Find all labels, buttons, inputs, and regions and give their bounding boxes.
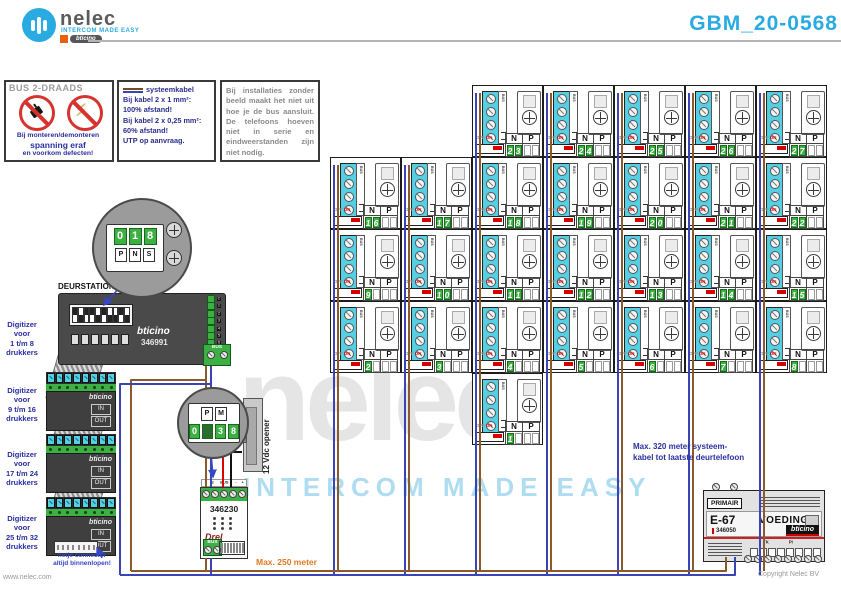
address-digit: 2 xyxy=(578,145,585,156)
address-table: N P 3 xyxy=(434,349,469,373)
terminal-screw xyxy=(344,166,354,176)
address-digit: 2 xyxy=(720,145,727,156)
in-port: IN xyxy=(91,529,111,540)
empty-slot xyxy=(666,361,673,372)
off-label: OFF xyxy=(760,208,769,212)
output-screws xyxy=(744,555,822,563)
dial-label[interactable]: N xyxy=(129,248,141,262)
digitizer-brand: bticino xyxy=(89,456,112,463)
address-digit: 6 xyxy=(373,217,380,228)
off-on-switch[interactable] xyxy=(689,144,717,154)
off-on-switch[interactable] xyxy=(476,288,504,298)
off-label: OFF xyxy=(689,352,698,356)
audio-only-text: Bij installaties zonder beeld maakt het … xyxy=(226,86,314,158)
off-on-switch[interactable] xyxy=(689,360,717,370)
phone-unit xyxy=(730,235,754,279)
n-digits: 22 xyxy=(790,216,806,228)
terminal-screw xyxy=(699,94,709,104)
off-on-switch[interactable] xyxy=(618,360,646,370)
digitizer-terminals xyxy=(46,434,116,446)
on-label: ON xyxy=(557,280,563,284)
off-label: OFF xyxy=(760,280,769,284)
deurtelefoon-cell: BUS OFF ON N P 8 xyxy=(756,301,827,373)
p-header: P xyxy=(451,206,468,215)
speaker-icon xyxy=(380,326,395,341)
address-digit: 1 xyxy=(436,217,443,228)
empty-slot xyxy=(524,217,531,228)
speaker-grille xyxy=(594,167,607,180)
p-slots xyxy=(593,216,610,228)
deurtelefoon-cell: BUS OFF ON N P 24 xyxy=(543,85,614,157)
address-table: N P 20 xyxy=(647,205,682,229)
dip-switch-block[interactable] xyxy=(69,304,133,326)
empty-slot xyxy=(816,361,823,372)
on-label: ON xyxy=(415,280,421,284)
off-label: OFF xyxy=(476,208,485,212)
terminal-screw xyxy=(557,238,567,248)
p-slots xyxy=(806,216,823,228)
out-port: OUT xyxy=(91,416,111,427)
address-digit: 1 xyxy=(649,289,656,300)
off-on-switch[interactable] xyxy=(618,144,646,154)
empty-slot xyxy=(666,289,673,300)
off-on-switch[interactable] xyxy=(334,288,362,298)
terminal-screw xyxy=(415,166,425,176)
off-on-switch[interactable] xyxy=(334,360,362,370)
p-slots xyxy=(522,432,539,444)
terminal-screw xyxy=(486,179,496,189)
terminal-screw xyxy=(486,238,496,248)
phone-unit xyxy=(659,307,683,351)
empty-slot xyxy=(737,145,744,156)
deurtelefoon-cell: BUS OFF ON N P 16 xyxy=(330,157,401,229)
empty-slot xyxy=(799,361,806,372)
address-digit: 4 xyxy=(507,361,514,372)
terminal-screw xyxy=(804,555,812,563)
phone-unit xyxy=(375,235,399,279)
p-slots xyxy=(451,288,468,300)
terminal-row: 3 xyxy=(207,318,223,324)
speaker-grille xyxy=(381,239,394,252)
deurtelefoon-cell: BUS OFF ON N P 27 xyxy=(756,85,827,157)
digitizer-brand: bticino xyxy=(89,519,112,526)
address-digit: 1 xyxy=(515,289,522,300)
empty-slot xyxy=(373,361,380,372)
phone-unit xyxy=(446,307,470,351)
off-label: OFF xyxy=(334,352,343,356)
n-header: N xyxy=(790,134,806,143)
on-label: ON xyxy=(770,352,776,356)
phone-unit xyxy=(801,235,825,279)
p-header: P xyxy=(735,350,752,359)
max-distance-bottom: Max. 250 meter xyxy=(256,557,317,567)
off-on-switch[interactable] xyxy=(618,216,646,226)
address-table: N P 10 xyxy=(434,277,469,301)
off-on-switch[interactable] xyxy=(547,288,575,298)
off-on-switch[interactable] xyxy=(760,216,788,226)
empty-slot xyxy=(595,217,602,228)
deurstation-module: bticino 346991 C12345678 xyxy=(58,293,226,365)
deurstation-brand: bticino xyxy=(137,326,170,337)
address-digit: 2 xyxy=(507,145,514,156)
deurtelefoon-cell: BUS OFF ON N P 14 xyxy=(685,229,756,301)
empty-slot xyxy=(666,217,673,228)
p-slots xyxy=(593,144,610,156)
empty-slot xyxy=(532,361,539,372)
n-header: N xyxy=(790,350,806,359)
phone-unit xyxy=(517,235,541,279)
off-label: OFF xyxy=(547,136,556,140)
speaker-grille xyxy=(807,167,820,180)
off-on-switch[interactable] xyxy=(689,288,717,298)
terminal-screw xyxy=(486,251,496,261)
address-digit: 1 xyxy=(720,289,727,300)
terminal-screw xyxy=(415,264,425,274)
audio-only-info-box: Bij installaties zonder beeld maakt het … xyxy=(220,80,320,162)
n-digits: 23 xyxy=(506,144,522,156)
p-header: P xyxy=(522,206,539,215)
bticino-logo-square xyxy=(60,35,68,43)
empty-slot xyxy=(737,361,744,372)
deurtelefoon-cell: BUS OFF ON N P 23 xyxy=(472,85,543,157)
terminal-screw xyxy=(557,310,567,320)
deurtelefoon-cell: BUS OFF ON N P 3 xyxy=(401,301,472,373)
n-header: N xyxy=(364,278,380,287)
empty-slot xyxy=(808,289,815,300)
off-on-switch[interactable] xyxy=(689,216,717,226)
on-label: ON xyxy=(415,208,421,212)
digitizer-label: Digitizervoor25 t/m 32drukkers xyxy=(0,514,44,552)
p-slots xyxy=(664,144,681,156)
power-supply-brand: bticino xyxy=(786,525,819,536)
on-label: ON xyxy=(344,352,350,356)
on-label: ON xyxy=(344,280,350,284)
on-label: ON xyxy=(770,136,776,140)
module-terminal-labels: 12BUS-+ xyxy=(201,479,247,487)
n-digits: 13 xyxy=(648,288,664,300)
p-header: P xyxy=(380,206,397,215)
no-plug-icon xyxy=(19,95,55,131)
adjust-screw-icon[interactable] xyxy=(166,250,182,266)
address-digit: 0 xyxy=(114,228,127,245)
n-header: N xyxy=(790,206,806,215)
terminal-screw xyxy=(628,94,638,104)
off-on-switch[interactable] xyxy=(405,288,433,298)
n-header: N xyxy=(506,278,522,287)
module-dip-switches[interactable] xyxy=(219,541,245,555)
speaker-icon xyxy=(735,326,750,341)
empty-slot xyxy=(524,433,531,444)
n-digits: 6 xyxy=(648,360,664,372)
address-table: N P 21 xyxy=(718,205,753,229)
terminal-screw xyxy=(344,323,354,333)
off-on-switch[interactable] xyxy=(476,144,504,154)
terminal-screw xyxy=(557,264,567,274)
terminal-screw xyxy=(557,179,567,189)
p-slots xyxy=(806,360,823,372)
terminal-screw xyxy=(344,310,354,320)
terminal-screw xyxy=(744,555,752,563)
terminal-screw xyxy=(486,166,496,176)
off-on-switch[interactable] xyxy=(405,216,433,226)
deurtelefoon-cell: BUS OFF ON N P 26 xyxy=(685,85,756,157)
terminal-screw xyxy=(770,179,780,189)
address-digit: 5 xyxy=(799,289,806,300)
off-on-switch[interactable] xyxy=(760,288,788,298)
empty-slot xyxy=(728,361,735,372)
empty-slot xyxy=(737,217,744,228)
terminal-screw xyxy=(344,179,354,189)
address-table: N P 17 xyxy=(434,205,469,229)
header-divider xyxy=(88,40,841,42)
empty-slot xyxy=(603,361,610,372)
address-table: N P 12 xyxy=(576,277,611,301)
connector-note: netje connector altijd binnenlopen! xyxy=(30,552,134,568)
adjust-screw-icon[interactable] xyxy=(166,222,182,238)
phone-unit xyxy=(801,91,825,135)
website-text: www.nelec.com xyxy=(3,574,52,581)
p-header: P xyxy=(806,134,823,143)
deurtelefoon-cell: BUS OFF ON N P 18 xyxy=(472,157,543,229)
terminal-row: 4 xyxy=(207,326,223,332)
speaker-grille xyxy=(452,311,465,324)
n-digits: 21 xyxy=(719,216,735,228)
p-slots xyxy=(451,360,468,372)
p-header: P xyxy=(451,350,468,359)
phone-unit xyxy=(517,91,541,135)
copyright-text: Copyright Nelec BV xyxy=(758,571,819,578)
address-digit: 0 xyxy=(444,289,451,300)
off-label: OFF xyxy=(334,208,343,212)
terminal-screw xyxy=(344,238,354,248)
empty-slot xyxy=(532,145,539,156)
terminal-screw xyxy=(344,251,354,261)
n-digits: 26 xyxy=(719,144,735,156)
p-slots xyxy=(664,360,681,372)
deurtelefoon-cell: BUS OFF ON N P 21 xyxy=(685,157,756,229)
terminal-row: 1 xyxy=(207,303,223,309)
p-header: P xyxy=(593,278,610,287)
off-label: OFF xyxy=(618,280,627,284)
n-header: N xyxy=(719,278,735,287)
off-label: OFF xyxy=(689,208,698,212)
speaker-icon xyxy=(735,182,750,197)
address-digit: 2 xyxy=(649,217,656,228)
p-header: P xyxy=(522,278,539,287)
terminal-screw xyxy=(557,323,567,333)
speaker-icon xyxy=(664,110,679,125)
phone-unit xyxy=(588,91,612,135)
n-digits: 16 xyxy=(364,216,380,228)
off-on-switch[interactable] xyxy=(547,360,575,370)
p-slots xyxy=(735,216,752,228)
terminal-screw xyxy=(557,120,567,130)
cable-line-1: Bij kabel 2 x 1 mm²: xyxy=(123,95,210,105)
empty-slot xyxy=(453,289,460,300)
off-on-switch[interactable] xyxy=(760,144,788,154)
n-digits: 24 xyxy=(577,144,593,156)
terminal-screw xyxy=(628,264,638,274)
deurtelefoon-cell: BUS OFF ON N P 10 xyxy=(401,229,472,301)
module-top-terminals xyxy=(201,488,247,501)
dial-label[interactable]: S xyxy=(143,248,155,262)
module-digit: 0 xyxy=(189,424,200,439)
tk-label: TK xyxy=(763,541,769,545)
n-digits: 20 xyxy=(648,216,664,228)
empty-slot xyxy=(390,217,397,228)
dial-label[interactable]: P xyxy=(115,248,127,262)
n-header: N xyxy=(506,422,522,431)
terminal-screw xyxy=(628,179,638,189)
n-header: N xyxy=(577,278,593,287)
cable-legend: systeemkabel xyxy=(123,85,210,95)
off-label: OFF xyxy=(547,280,556,284)
watermark-tagline: INTERCOM MADE EASY xyxy=(243,472,651,503)
off-on-switch[interactable] xyxy=(547,144,575,154)
n-header: N xyxy=(435,278,451,287)
terminal-screw xyxy=(628,323,638,333)
interface-module-346230: 12BUS-+ 346230 Drel BUS xyxy=(200,487,248,559)
terminal-screw xyxy=(486,192,496,202)
terminal-screw xyxy=(415,238,425,248)
terminal-screw xyxy=(557,107,567,117)
digitizer-module: bticinoINOUT xyxy=(46,372,116,431)
p-slots xyxy=(593,288,610,300)
n-digits: 4 xyxy=(506,360,522,372)
speaker-icon xyxy=(806,110,821,125)
digitizer-label: Digitizervoor1 t/m 8drukkers xyxy=(0,320,44,358)
n-header: N xyxy=(435,350,451,359)
speaker-grille xyxy=(736,95,749,108)
address-digit: 4 xyxy=(728,289,735,300)
n-header: N xyxy=(506,206,522,215)
cable-legend-label: systeemkabel xyxy=(146,85,194,95)
speaker-grille xyxy=(807,95,820,108)
off-label: OFF xyxy=(547,352,556,356)
terminal-screw xyxy=(557,251,567,261)
speaker-grille xyxy=(736,239,749,252)
dip-switch[interactable] xyxy=(124,307,130,323)
terminal-screw xyxy=(344,336,354,346)
terminal-screw xyxy=(628,238,638,248)
terminal-row: 2 xyxy=(207,311,223,317)
jumper-block[interactable] xyxy=(201,517,247,530)
address-table: N P 4 xyxy=(505,349,540,373)
empty-slot xyxy=(532,433,539,444)
address-digit: 1 xyxy=(578,289,585,300)
cable-line-5: UTP op aanvraag. xyxy=(123,136,210,146)
p-header: P xyxy=(522,134,539,143)
p-header: P xyxy=(380,278,397,287)
speaker-icon xyxy=(522,182,537,197)
p-header: P xyxy=(806,206,823,215)
cable-line-2: 100% afstand! xyxy=(123,105,210,115)
phone-unit xyxy=(446,235,470,279)
off-label: OFF xyxy=(618,136,627,140)
n-header: N xyxy=(506,350,522,359)
on-label: ON xyxy=(628,136,634,140)
phone-unit xyxy=(446,163,470,207)
p-header: P xyxy=(522,350,539,359)
address-digit: 1 xyxy=(728,217,735,228)
n-digits: 15 xyxy=(790,288,806,300)
off-label: OFF xyxy=(405,280,414,284)
address-digit: 6 xyxy=(728,145,735,156)
terminal-screw xyxy=(557,94,567,104)
n-header: N xyxy=(577,350,593,359)
deurstation-part-number: 346991 xyxy=(141,338,168,347)
off-on-switch[interactable] xyxy=(476,360,504,370)
off-on-switch[interactable] xyxy=(334,216,362,226)
off-label: OFF xyxy=(405,352,414,356)
empty-slot xyxy=(745,145,752,156)
dial-label[interactable]: M xyxy=(215,407,227,421)
off-on-switch[interactable] xyxy=(476,432,504,442)
terminal-screw xyxy=(628,107,638,117)
module-digit-blank xyxy=(202,424,213,439)
off-label: OFF xyxy=(334,280,343,284)
address-table: N P 5 xyxy=(576,349,611,373)
vent-slots xyxy=(760,495,820,507)
on-label: ON xyxy=(770,280,776,284)
speaker-grille xyxy=(665,239,678,252)
terminal-screw xyxy=(770,264,780,274)
deurtelefoon-cell: BUS OFF ON N P 15 xyxy=(756,229,827,301)
off-on-switch[interactable] xyxy=(405,360,433,370)
on-label: ON xyxy=(557,136,563,140)
speaker-grille xyxy=(523,95,536,108)
phone-unit xyxy=(659,163,683,207)
speaker-grille xyxy=(807,239,820,252)
dial-label[interactable]: P xyxy=(201,407,213,421)
phone-unit xyxy=(659,235,683,279)
in-port: IN xyxy=(91,404,111,415)
address-table: N P 16 xyxy=(363,205,398,229)
n-digits: 12 xyxy=(577,288,593,300)
terminal-screw xyxy=(770,323,780,333)
address-digit: 7 xyxy=(799,145,806,156)
empty-slot xyxy=(816,289,823,300)
empty-slot xyxy=(373,289,380,300)
empty-slot xyxy=(745,289,752,300)
address-table: N P 27 xyxy=(789,133,824,157)
p-header: P xyxy=(593,134,610,143)
off-on-switch[interactable] xyxy=(476,216,504,226)
speaker-grille xyxy=(523,167,536,180)
off-label: OFF xyxy=(618,352,627,356)
off-on-switch[interactable] xyxy=(618,288,646,298)
off-on-switch[interactable] xyxy=(547,216,575,226)
on-label: ON xyxy=(699,208,705,212)
p-slots xyxy=(593,360,610,372)
speaker-grille xyxy=(452,239,465,252)
speaker-icon xyxy=(380,182,395,197)
off-label: OFF xyxy=(618,208,627,212)
n-digits: 11 xyxy=(506,288,522,300)
n-digits: 3 xyxy=(435,360,451,372)
empty-slot xyxy=(595,361,602,372)
empty-slot xyxy=(595,145,602,156)
p-header: P xyxy=(664,278,681,287)
terminal-screw xyxy=(699,336,709,346)
address-digit: 8 xyxy=(144,228,157,245)
empty-slot xyxy=(382,289,389,300)
empty-slot xyxy=(461,217,468,228)
terminal-screw xyxy=(784,555,792,563)
terminal-screw xyxy=(628,192,638,202)
off-on-switch[interactable] xyxy=(760,360,788,370)
empty-slot xyxy=(603,217,610,228)
